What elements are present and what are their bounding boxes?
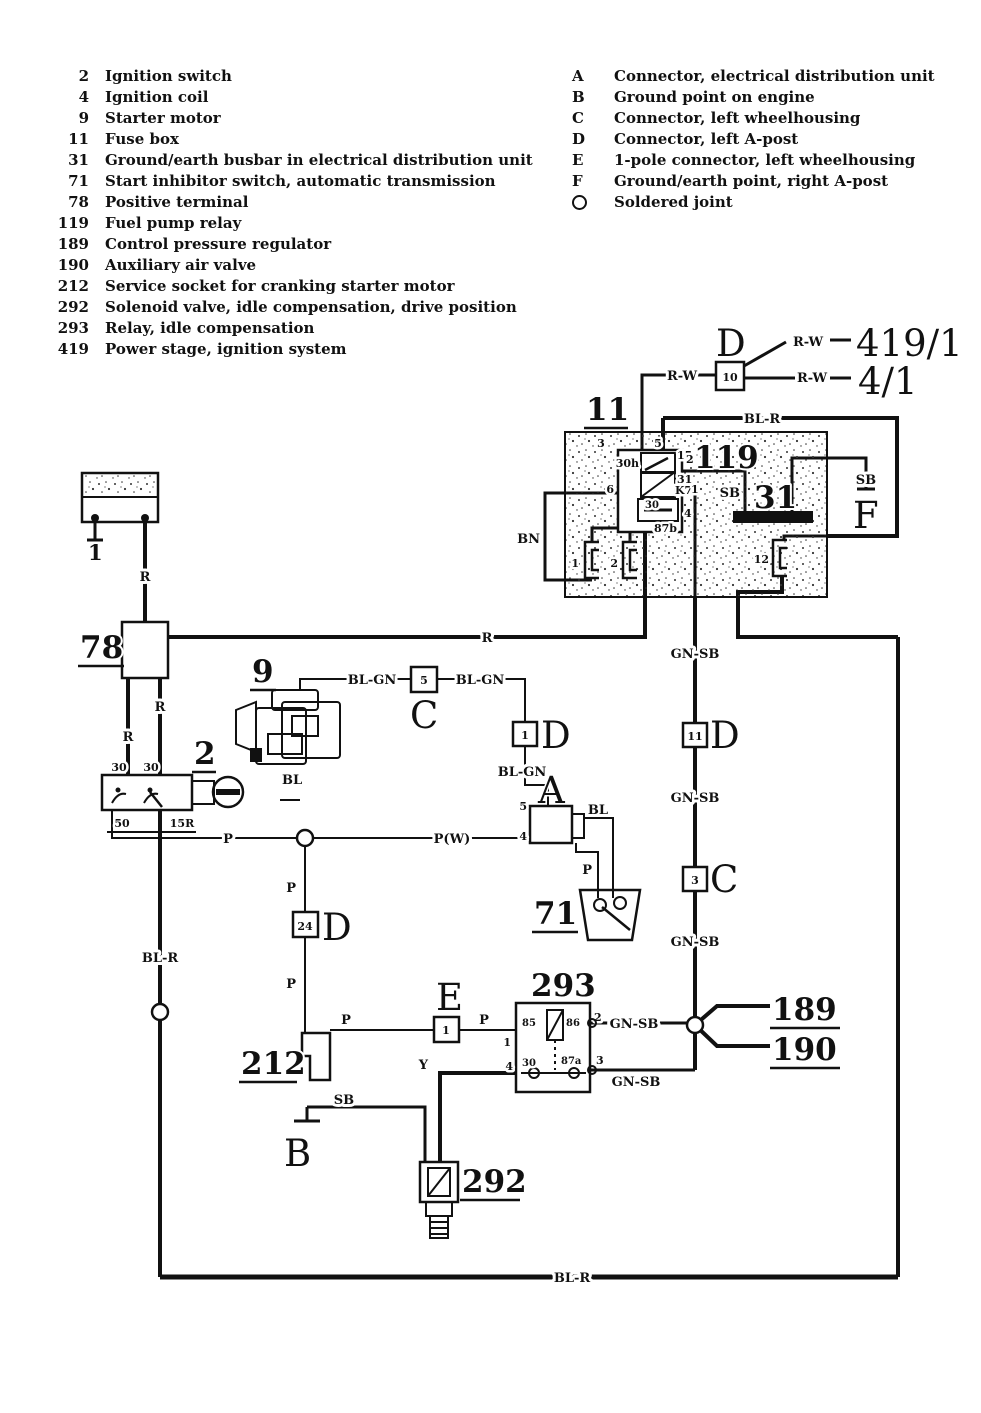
fuse-number: 2 [610,557,618,570]
pin-label: 1 [521,729,529,742]
pin-label: 3 [691,874,699,887]
connector-a: A 5 4 BL P P P(W) [223,769,608,878]
connector-d24: 24 D [293,906,352,949]
pin-label: 30 [143,761,159,774]
wire-label-r: R [123,730,134,745]
wire-label-p-w: P(W) [434,832,471,847]
component-number-ignition-coil: 4/1 [858,360,918,403]
connector-letter-d: D [716,322,746,365]
starter-motor: 9 BL BL-GN BL-GN BL-GN [236,654,546,800]
pin-label: 4 [519,830,527,843]
wire-label-r-w: R-W [793,335,823,350]
soldered-joint [297,830,313,846]
wire-sb-b [307,1107,425,1162]
wire-label-p: P [479,1013,489,1028]
wire-label-bl-gn: BL-GN [348,673,397,688]
wire-label-sb: SB [334,1093,354,1108]
ground-letter-b: B [284,1132,311,1175]
connector-letter-d: D [710,714,740,757]
wire-branch-190 [695,1025,770,1046]
pin-label: 5 [420,674,428,687]
socket-212-body [302,1033,330,1080]
wire-label-bl-gn: BL-GN [456,673,505,688]
connector-d1: 1 D [513,714,571,757]
wire-label-r-w: R-W [797,371,827,386]
inhibitor-switch-71: 71 [532,890,640,940]
wire-label-bl-r: BL-R [554,1271,591,1286]
wire-label-gn-sb: GN-SB [671,791,720,806]
relay-293: 293 85 86 30 87a 1 2 3 4 [503,968,603,1092]
pin-label: 5 [519,800,527,813]
inhibitor-lever [602,907,630,930]
wire-label-gn-sb: GN-SB [612,1075,661,1090]
pin-label: 30 [522,1058,536,1069]
connector-e1: E 1 [434,976,463,1042]
wire-label-p: P [582,863,592,878]
wire-label-p: P [286,881,296,896]
battery-terminal-neg [91,514,99,522]
component-number-212: 212 [241,1046,306,1082]
pin-label: 50 [114,817,130,830]
inhibitor-terminal [614,897,626,909]
wire-label-bl-r: BL-R [744,412,781,427]
wire-label-y: Y [418,1058,429,1073]
component-number-power-stage: 419/1 [856,322,963,365]
pin-label: 24 [297,920,313,933]
connector-letter-e: E [436,976,463,1019]
battery-top-band [84,475,156,493]
fuse-number: 1 [571,557,579,570]
relay-293-body [516,1003,590,1092]
wire-label-sb: SB [720,486,740,501]
wire-label-bl-r: BL-R [142,951,179,966]
wire-label-bl: BL [282,773,302,788]
pin-label: 85 [522,1018,536,1029]
connector-a-box [530,806,572,843]
component-number-78: 78 [80,630,123,666]
wire-label-gn-sb: GN-SB [671,935,720,950]
component-number-293: 293 [531,968,596,1004]
pin-label: 4 [684,507,692,520]
connector-letter-c: C [710,858,738,901]
connector-letter-d: D [541,714,571,757]
wire-label-r: R [155,700,166,715]
contact-dot [148,788,153,793]
connector-d11: 11 D [683,714,740,757]
component-number-190: 190 [772,1032,837,1068]
schematic: 11 119 3 5 30h 15 2 31 K7 1 6 30 87b 4 [0,0,981,1413]
wire-label-r: R [482,631,493,646]
wire-y [440,1073,516,1162]
starter-nose [236,702,256,752]
starter-brush [250,748,262,762]
wire-label-bl: BL [588,803,608,818]
component-number-2: 2 [194,736,216,772]
solenoid-valve-292: 292 [420,1162,527,1238]
ground-letter-f: F [853,494,879,537]
soldered-joint [152,1004,168,1020]
pin-label: 30 [645,500,659,511]
connector-c3: 3 C [683,858,738,901]
pin-label: 30h [616,457,639,470]
terminal-78-box [122,622,168,678]
battery-terminal-pos [141,514,149,522]
wire-label-r: R [140,570,151,585]
wire-label-sb-f: SB [856,473,876,488]
pin-label: 87a [561,1056,582,1067]
pin-label: 3 [597,437,605,450]
pin-label: 3 [596,1054,604,1067]
wire-label-p: P [223,832,233,847]
fuse-number: 12 [754,553,769,566]
ignition-switch-body [102,775,192,810]
wire-label-p: P [286,977,296,992]
wire-label-bn: BN [517,532,540,547]
wire-r-w-diag [744,342,786,366]
wire-label-r-w: R-W [667,369,697,384]
pin-label: 10 [722,371,738,384]
connector-c5: 5 C [410,667,438,737]
pin-label: 5 [654,437,662,450]
ignition-switch: 30 30 2 50 15R [102,736,243,832]
wire-branch-189 [695,1006,770,1025]
component-number-busbar: 31 [754,480,797,516]
component-number-relay-119: 119 [694,440,759,476]
contact-dot [116,788,121,793]
wire-label-p: P [341,1013,351,1028]
solenoid-mid [426,1202,452,1216]
pin-label: 6 [606,483,614,496]
component-number-292: 292 [462,1164,527,1200]
component-number-189: 189 [772,992,837,1028]
pin-label: 30 [111,761,127,774]
pin-label: 1 [442,1024,450,1037]
pin-label: 87b [654,522,677,535]
ground-f: SB F [853,473,879,537]
ignition-switch-extension [192,781,214,804]
connector-letter-c: C [410,694,438,737]
service-socket-212: 212 [239,1033,330,1082]
pin-label: 86 [566,1018,580,1029]
wire-label-gn-sb: GN-SB [671,647,720,662]
connector-a-tab [572,814,584,838]
pin-label: 1 [503,1036,511,1049]
connector-letter-d: D [322,906,352,949]
wiring-diagram-page: 2Ignition switch 4Ignition coil 9Starter… [0,0,981,1413]
pin-label: 11 [687,730,702,743]
soldered-joint [687,1017,703,1033]
pin-label: 2 [686,453,694,466]
pin-label: 4 [505,1060,513,1073]
ground-b: SB B [284,1093,354,1175]
pin-label: 1 [691,483,699,496]
wire-label-gn-sb: GN-SB [610,1017,659,1032]
component-number-9: 9 [252,654,274,690]
component-number-71: 71 [534,896,577,932]
pin-label: K7 [675,484,692,497]
component-number-battery: 1 [88,540,103,565]
component-number-fuse-box: 11 [586,392,629,428]
pin-label: 15R [170,817,195,830]
